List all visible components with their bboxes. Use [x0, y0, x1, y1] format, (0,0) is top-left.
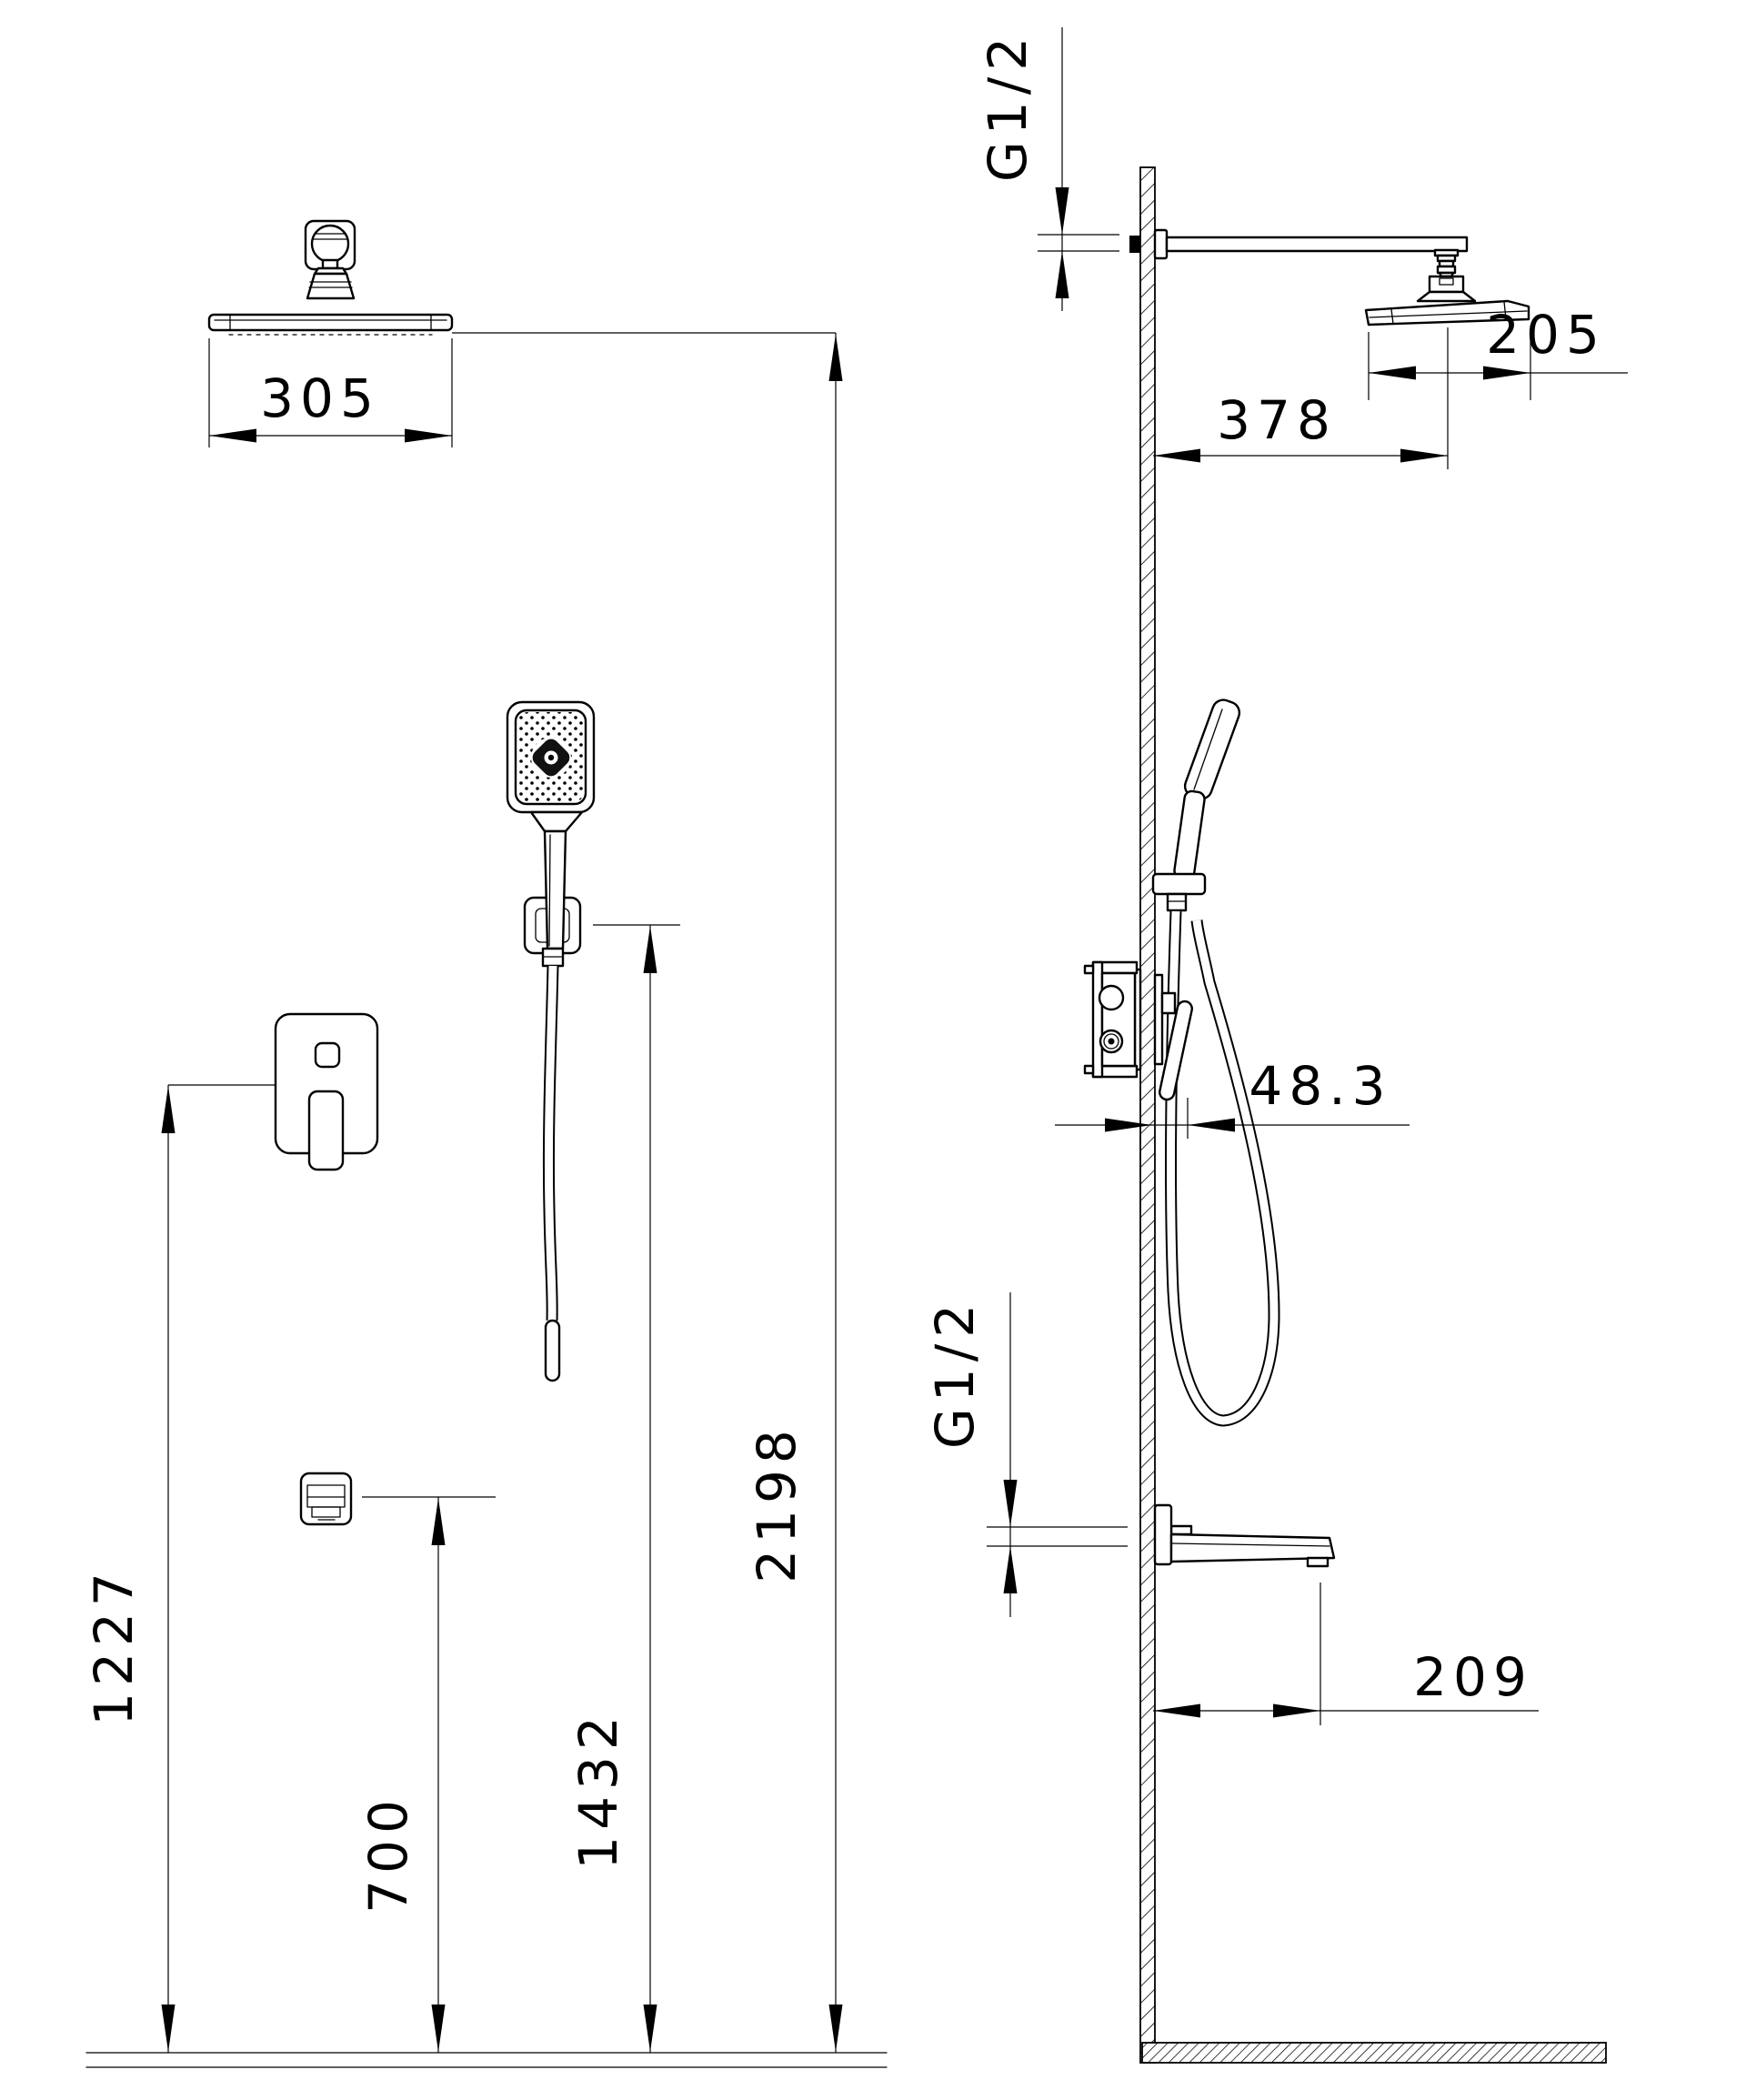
dim-spout-reach: 209	[1153, 1583, 1539, 1725]
rain-shower-arm-side	[1129, 230, 1475, 301]
dim-text-spout-reach: 209	[1413, 1646, 1533, 1708]
dim-text-lever-projection: 48.3	[1249, 1055, 1391, 1117]
wall-section	[1140, 167, 1155, 2063]
dim-arm-thread: G1/2	[977, 27, 1119, 311]
valve-lever-side	[1159, 1000, 1194, 1101]
mixer-lever	[309, 1091, 343, 1170]
dim-hand-shower-height: 1432	[567, 925, 680, 2053]
dim-spout-height: 700	[357, 1497, 496, 2053]
spout-side	[1155, 1505, 1334, 1566]
dim-mixer-height: 1227	[83, 1085, 276, 2053]
diverter-button	[316, 1043, 339, 1067]
front-view: 305 2198 1432 1227	[83, 221, 887, 2067]
shower-hose-front	[546, 966, 559, 1381]
valve-escutcheon-side	[1155, 975, 1162, 1064]
floor-section-side	[1142, 2043, 1606, 2063]
hand-shower-holder-side	[1153, 874, 1205, 894]
dim-text-head-depth: 205	[1486, 304, 1606, 366]
hand-shower-front	[507, 702, 594, 966]
dim-text-hand-shower-height: 1432	[567, 1710, 629, 1870]
side-view: G1/2 205 378	[924, 27, 1628, 2063]
mixer-valve-front	[276, 1014, 377, 1170]
rain-shower-head-front	[209, 221, 452, 335]
dim-text-overall-height: 2198	[746, 1423, 808, 1583]
dim-text-spout-thread: G1/2	[924, 1298, 986, 1449]
floor-line-front	[86, 2053, 887, 2067]
hand-shower-side	[1153, 697, 1242, 910]
dim-spout-thread: G1/2	[924, 1292, 1128, 1617]
dim-text-head-width: 305	[260, 367, 380, 429]
spout-front	[301, 1473, 351, 1524]
dim-overall-height: 2198	[746, 333, 843, 2053]
dim-arm-reach: 378	[1153, 327, 1448, 469]
technical-drawing: 305 2198 1432 1227	[0, 0, 1746, 2100]
shower-hose-side	[1170, 911, 1274, 1421]
dim-head-width: 305	[209, 338, 452, 447]
dim-text-arm-thread: G1/2	[977, 31, 1039, 182]
dim-text-mixer-height: 1227	[83, 1566, 145, 1726]
dim-text-spout-height: 700	[357, 1794, 419, 1914]
dim-text-arm-reach: 378	[1217, 389, 1337, 451]
